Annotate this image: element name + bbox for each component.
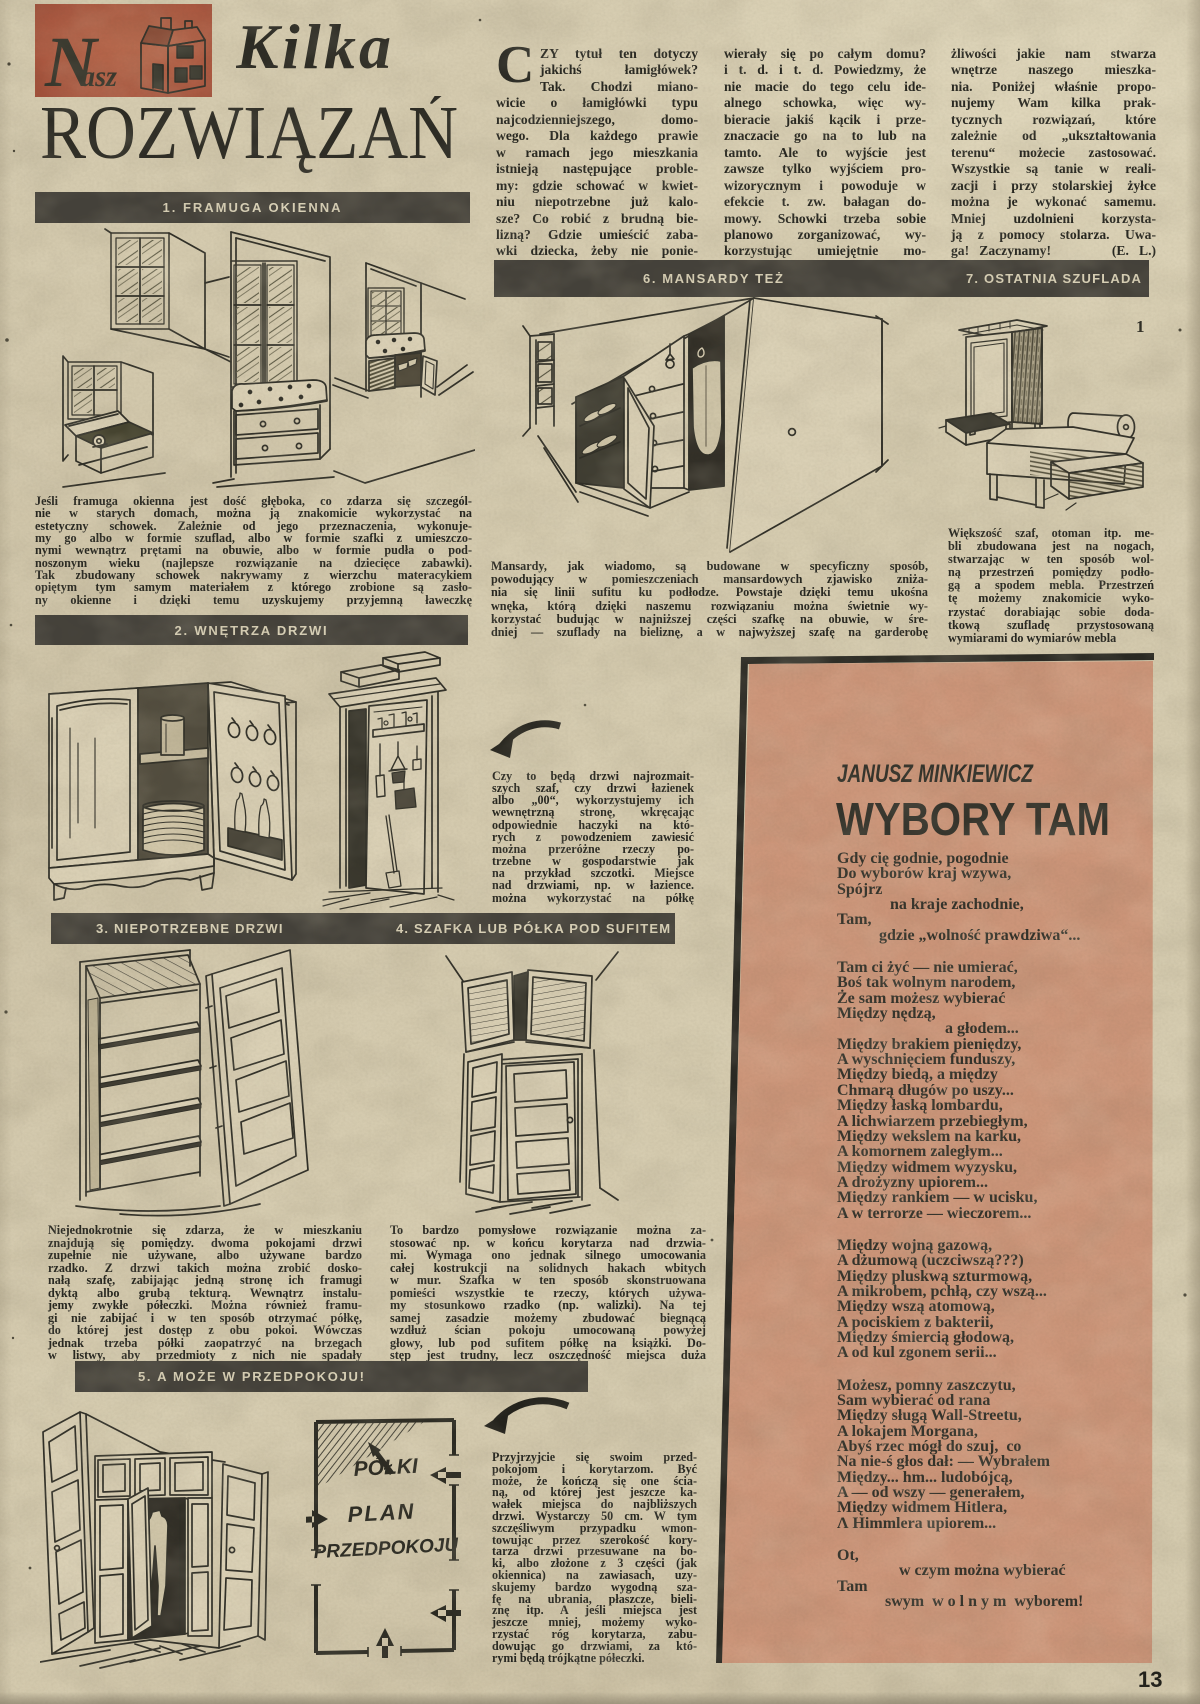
svg-text:PRZEDPOKOJU: PRZEDPOKOJU	[313, 1534, 460, 1563]
svg-text:Kilka: Kilka	[236, 18, 391, 80]
svg-text:asz: asz	[81, 60, 117, 93]
svg-text:1: 1	[1136, 317, 1145, 336]
svg-text:WYBORY TAM: WYBORY TAM	[836, 797, 1110, 841]
svg-text:PÓŁKI: PÓŁKI	[353, 1454, 420, 1481]
svg-text:ROZWIĄZAŃ: ROZWIĄZAŃ	[40, 96, 458, 175]
svg-text:PLAN: PLAN	[347, 1498, 416, 1527]
svg-text:JANUSZ MINKIEWICZ: JANUSZ MINKIEWICZ	[837, 760, 1034, 788]
